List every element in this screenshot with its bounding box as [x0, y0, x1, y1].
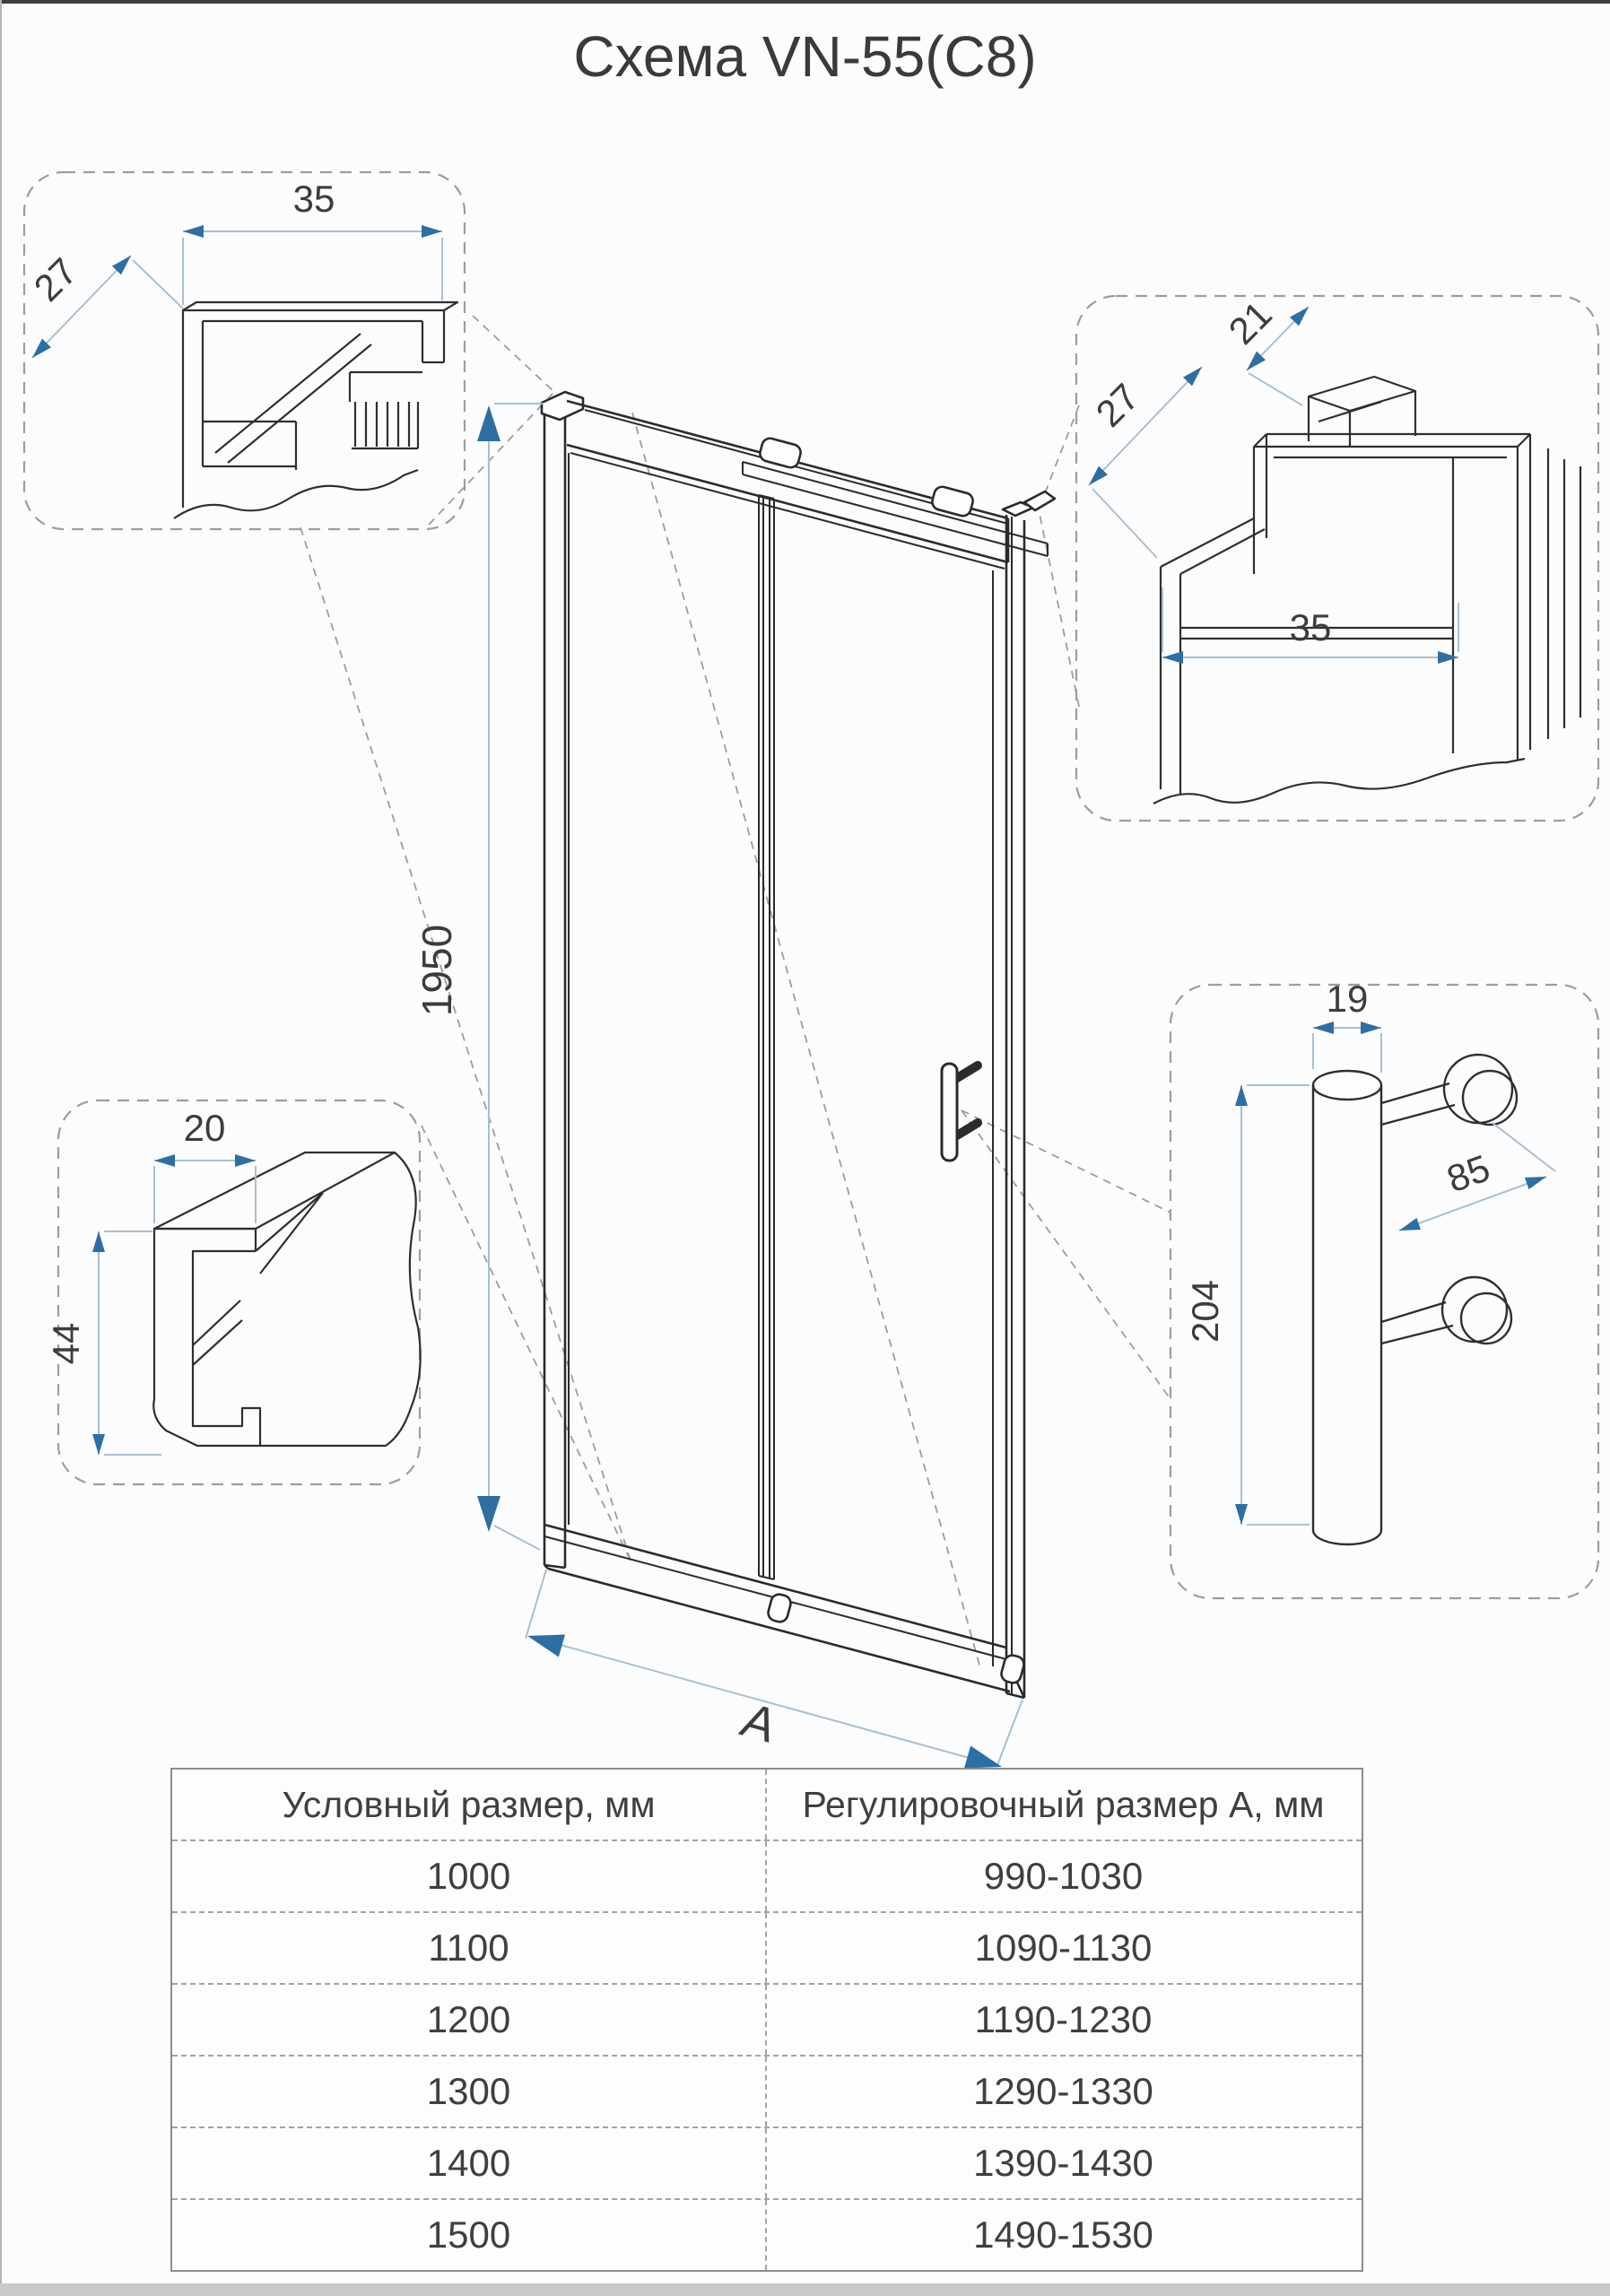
bubble-top-right: [1076, 296, 1598, 821]
dim-tr-tube: 21: [1221, 293, 1280, 352]
dim-tr-depth: 27: [1088, 376, 1147, 435]
cell-size: 1000: [172, 1841, 767, 1911]
detail-top-right: 21 27 35: [1084, 293, 1580, 804]
table-header-row: Условный размер, мм Регулировочный разме…: [172, 1770, 1362, 1839]
dim-bl-width: 20: [184, 1107, 226, 1149]
dim-tr-width: 35: [1290, 606, 1332, 648]
table-header-nominal: Условный размер, мм: [172, 1770, 767, 1839]
table-row: 1400 1390-1430: [172, 2126, 1362, 2198]
cell-range: 1390-1430: [767, 2128, 1360, 2198]
dim-tl-depth: 27: [26, 250, 85, 309]
callout-bubbles: [24, 172, 1598, 1598]
bubble-top-left: [24, 172, 465, 529]
cell-range: 1090-1130: [767, 1913, 1360, 1983]
table-row: 1500 1490-1530: [172, 2198, 1362, 2270]
schematic-page: Схема VN-55(C8): [0, 0, 1610, 2296]
bubble-handle: [1171, 985, 1598, 1598]
dim-door-width: А: [734, 1693, 785, 1752]
cell-size: 1100: [172, 1913, 767, 1983]
cell-range: 990-1030: [767, 1841, 1360, 1911]
door-handle: [942, 1064, 978, 1161]
dim-door-height: 1950: [413, 925, 460, 1016]
main-door-drawing: [542, 392, 1055, 1698]
cell-size: 1200: [172, 1985, 767, 2055]
table-header-adjust: Регулировочный размер А, мм: [767, 1770, 1360, 1839]
cell-range: 1190-1230: [767, 1985, 1360, 2055]
table-row: 1200 1190-1230: [172, 1983, 1362, 2055]
page-edge-bottom: [0, 2283, 1610, 2296]
detail-handle: 19 204 85: [1184, 978, 1555, 1544]
table-row: 1000 990-1030: [172, 1839, 1362, 1911]
dim-handle-diameter: 19: [1327, 978, 1369, 1020]
table-row: 1300 1290-1330: [172, 2055, 1362, 2126]
detail-top-left: 35 27: [26, 178, 457, 518]
table-row: 1100 1090-1130: [172, 1911, 1362, 1983]
dim-handle-gap: 85: [1441, 1146, 1495, 1200]
cell-size: 1500: [172, 2200, 767, 2270]
dim-bl-height: 44: [45, 1323, 87, 1365]
cell-size: 1300: [172, 2057, 767, 2126]
detail-bottom-rail: 20 44: [45, 1107, 421, 1455]
cell-range: 1290-1330: [767, 2057, 1360, 2126]
cell-size: 1400: [172, 2128, 767, 2198]
dim-tl-width: 35: [293, 178, 335, 220]
cell-range: 1490-1530: [767, 2200, 1360, 2270]
size-table: Условный размер, мм Регулировочный разме…: [170, 1768, 1363, 2272]
dim-handle-length: 204: [1184, 1280, 1226, 1343]
